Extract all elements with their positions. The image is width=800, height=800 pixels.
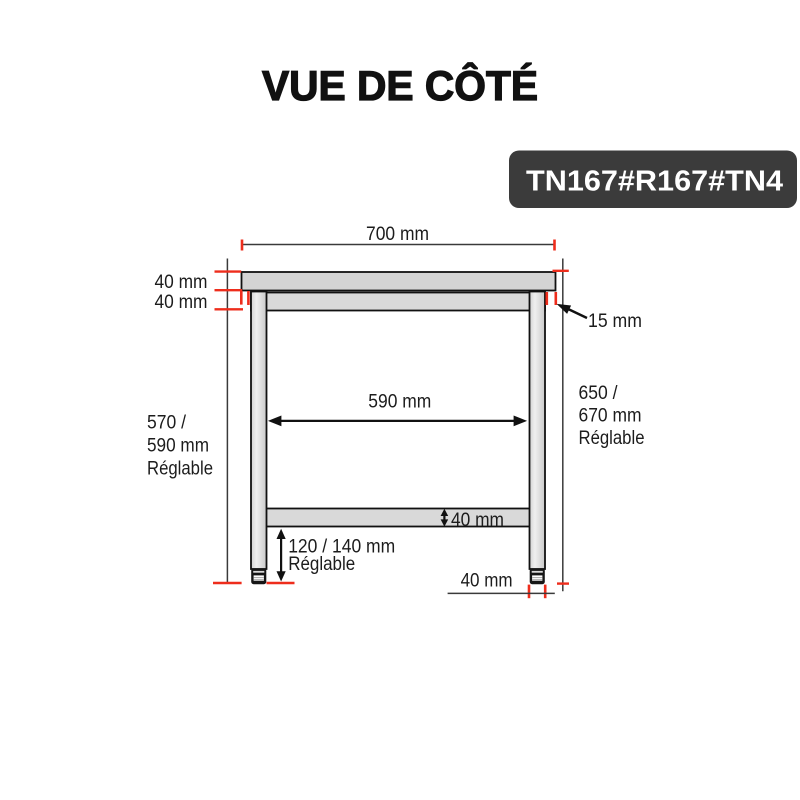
svg-text:40 mm: 40 mm [155, 272, 208, 293]
svg-text:590 mm: 590 mm [147, 436, 209, 457]
svg-text:570 /: 570 / [147, 413, 187, 434]
svg-text:670 mm: 670 mm [579, 406, 642, 427]
svg-text:VUE DE CÔTÉ: VUE DE CÔTÉ [262, 61, 538, 109]
svg-text:650 /: 650 / [579, 383, 619, 404]
svg-text:Réglable: Réglable [147, 459, 213, 480]
svg-text:TN167#R167#TN4: TN167#R167#TN4 [526, 165, 783, 197]
svg-text:Réglable: Réglable [579, 428, 645, 449]
svg-text:590 mm: 590 mm [368, 392, 431, 413]
svg-text:40 mm: 40 mm [461, 571, 513, 592]
svg-text:700 mm: 700 mm [366, 224, 429, 245]
svg-text:15 mm: 15 mm [588, 311, 642, 332]
svg-text:Réglable: Réglable [288, 554, 355, 575]
svg-text:40 mm: 40 mm [451, 510, 504, 531]
svg-text:40 mm: 40 mm [155, 292, 208, 313]
